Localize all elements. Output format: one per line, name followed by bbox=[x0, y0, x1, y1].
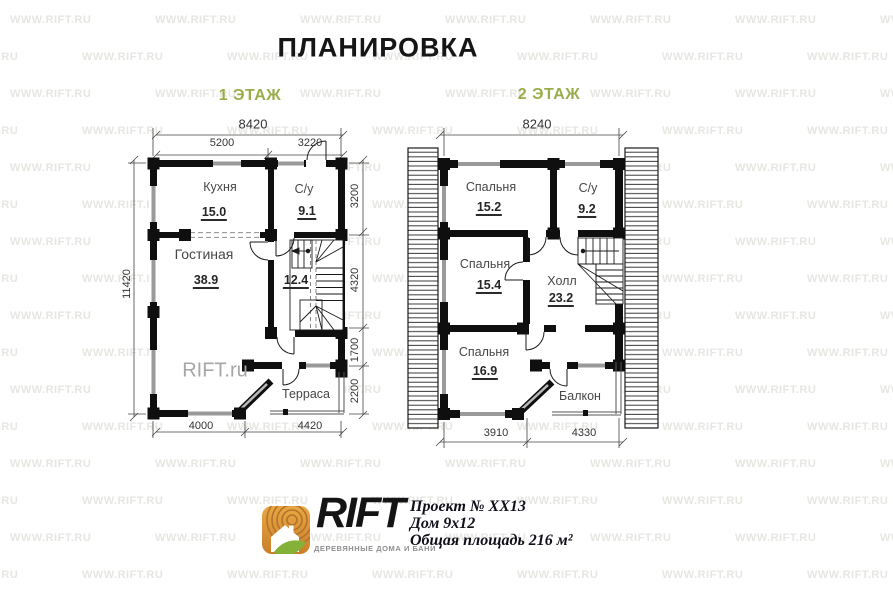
floor1-dim-right-3: 1700 bbox=[349, 338, 361, 362]
floor2-dim-bottom-1: 3910 bbox=[484, 427, 508, 439]
page-title: ПЛАНИРОВКА bbox=[278, 33, 479, 64]
floor1-dim-top-total: 8420 bbox=[239, 117, 268, 132]
floor2-area-hall: 23.2 bbox=[548, 291, 574, 307]
floor2-room-bedroom2: Спальня bbox=[460, 257, 510, 271]
floor1-room-kitchen: Кухня bbox=[203, 180, 236, 194]
floor1-dim-right-2: 4320 bbox=[349, 268, 361, 292]
floor2-room-bedroom3: Спальня bbox=[459, 345, 509, 359]
floor2-area-bedroom3: 16.9 bbox=[472, 364, 498, 380]
floor1-area-hall: 12.4 bbox=[283, 273, 309, 289]
project-info-block: Проект № XX13 Дом 9х12 Общая площадь 216… bbox=[410, 498, 573, 549]
rift-brand-text: RIFT bbox=[316, 492, 404, 535]
floor2-area-wc: 9.2 bbox=[577, 202, 596, 218]
total-area: Общая площадь 216 м² bbox=[410, 532, 573, 549]
floor1-label: 1 ЭТАЖ bbox=[219, 87, 282, 105]
floor1-dim-bottom-2: 4420 bbox=[298, 420, 322, 432]
floor2-room-bedroom1: Спальня bbox=[466, 180, 516, 194]
floor1-area-wc: 9.1 bbox=[297, 204, 316, 220]
floor1-plan-watermark: RIFT.ru bbox=[182, 360, 248, 383]
floor1-area-kitchen: 15.0 bbox=[201, 205, 227, 221]
rift-logo-icon bbox=[262, 506, 310, 554]
floor2-room-wc: С/у bbox=[579, 181, 598, 195]
floor2-area-bedroom1: 15.2 bbox=[476, 200, 502, 216]
footer: RIFT ДЕРЕВЯННЫЕ ДОМА И БАНИ Проект № XX1… bbox=[0, 492, 893, 572]
project-number: Проект № XX13 bbox=[410, 498, 573, 515]
floor2-area-bedroom2: 15.4 bbox=[476, 278, 502, 294]
floor1-dim-left-total: 11420 bbox=[121, 269, 133, 299]
floor1-dim-right-1: 3200 bbox=[349, 184, 361, 208]
floor1-dim-bottom-1: 4000 bbox=[189, 420, 213, 432]
floor2-room-balcony: Балкон bbox=[559, 389, 601, 403]
floor1-room-terrace: Терраса bbox=[282, 387, 330, 401]
floor2-dim-top-total: 8240 bbox=[523, 117, 552, 132]
floor1-dim-top-right: 3220 bbox=[298, 137, 322, 149]
floor2-room-hall: Холл bbox=[547, 274, 576, 288]
floor2-label: 2 ЭТАЖ bbox=[518, 86, 581, 104]
floor1-dim-top-left: 5200 bbox=[210, 137, 234, 149]
floor1-dim-right-4: 2200 bbox=[349, 379, 361, 403]
floor1-room-wc: С/у bbox=[295, 182, 314, 196]
house-size: Дом 9х12 bbox=[410, 515, 573, 532]
floor1-room-living: Гостиная bbox=[175, 246, 234, 262]
floor2-dim-bottom-2: 4330 bbox=[572, 427, 596, 439]
floor1-area-living: 38.9 bbox=[193, 273, 219, 289]
